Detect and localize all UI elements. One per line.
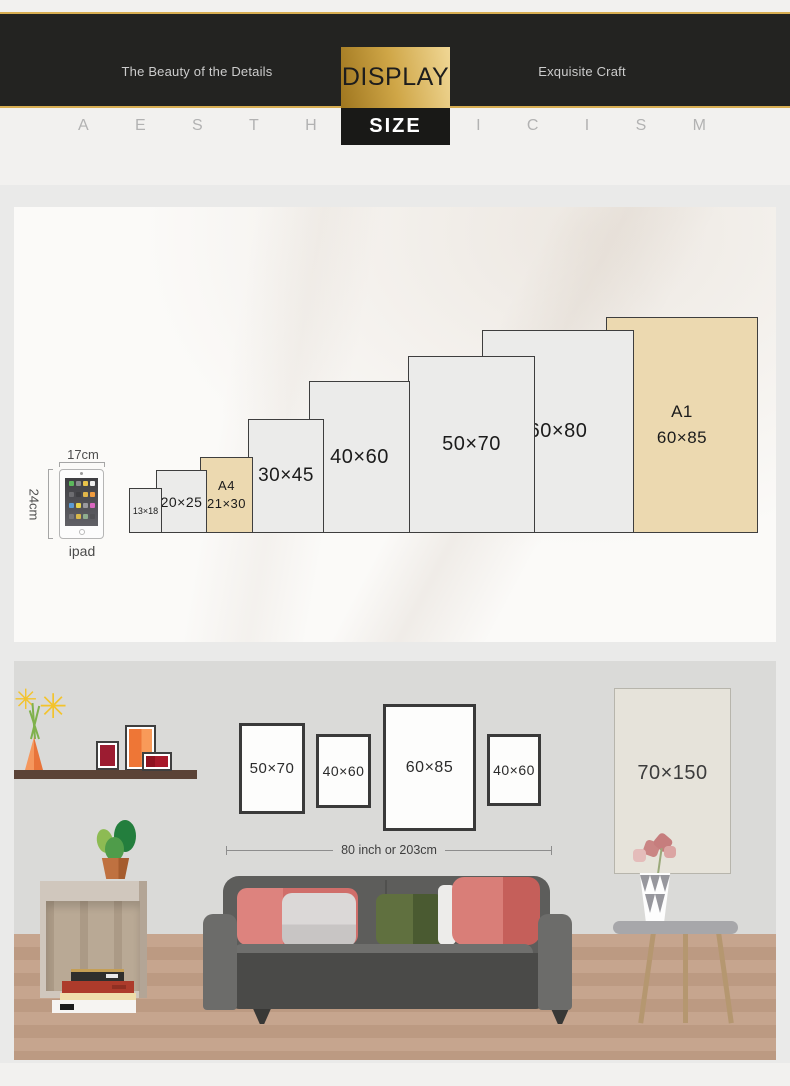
dimension-label: 80 inch or 203cm xyxy=(333,843,445,857)
ipad-camera-dot xyxy=(80,472,83,475)
ipad-height-bracket xyxy=(48,469,53,539)
wall-frame-40x60-b: 40×60 xyxy=(487,734,541,806)
book xyxy=(60,993,136,1000)
size-badge: SIZE xyxy=(341,108,450,145)
size-box-20x25: 20×25 xyxy=(156,470,207,533)
letter: E xyxy=(135,117,146,135)
size-box-label: 40×60 xyxy=(330,446,389,469)
sofa-width-dimension: 80 inch or 203cm xyxy=(226,845,552,855)
size-box-label: 20×25 xyxy=(161,494,203,510)
size-box-a4-21x30: A4 21×30 xyxy=(200,457,253,533)
side-table-top xyxy=(613,921,738,934)
book xyxy=(71,969,124,981)
wall-frame-label: 40×60 xyxy=(493,762,535,778)
app-icon xyxy=(69,503,74,508)
wall-frame-label: 70×150 xyxy=(637,762,707,785)
size-box-label: 60×85 xyxy=(657,425,707,451)
size-box-13x18: 13×18 xyxy=(129,488,162,533)
sofa-cushion-olive xyxy=(376,894,443,945)
letter: I xyxy=(476,117,480,135)
sofa-arm-right xyxy=(538,914,572,1010)
app-icon xyxy=(76,492,81,497)
cube-side-face xyxy=(139,881,147,998)
flower-petal xyxy=(664,846,676,858)
sofa-cushion-gray xyxy=(282,893,356,947)
ipad-illustration xyxy=(59,469,104,539)
wall-frame-label: 50×70 xyxy=(250,760,295,777)
book-label xyxy=(106,974,118,978)
size-box-30x45: 30×45 xyxy=(248,419,324,533)
dimension-line xyxy=(445,850,551,851)
app-icon xyxy=(69,514,74,519)
app-icon xyxy=(76,514,81,519)
size-box-label: 21×30 xyxy=(207,495,246,513)
size-box-label: 50×70 xyxy=(442,433,501,456)
display-badge: DISPLAY xyxy=(341,47,450,108)
product-infographic-page: The Beauty of the Details Exquisite Craf… xyxy=(0,0,790,1086)
book xyxy=(62,981,134,993)
table-vase xyxy=(636,873,674,922)
dimension-line xyxy=(227,850,333,851)
size-box-40x60: 40×60 xyxy=(309,381,410,533)
size-box-label: A1 xyxy=(671,399,693,425)
flower-burst-icon: ✳ xyxy=(39,690,68,724)
wall-frame-label: 40×60 xyxy=(323,763,365,779)
letter: T xyxy=(249,117,259,135)
frame-picture xyxy=(100,745,115,766)
wall-frame-60x85: 60×85 xyxy=(383,704,476,831)
cube-side-table xyxy=(40,881,147,998)
app-icon xyxy=(83,481,88,486)
size-box-50x70: 50×70 xyxy=(408,356,535,533)
vase-triangle xyxy=(655,894,665,913)
app-icon xyxy=(76,503,81,508)
sofa-arm-left xyxy=(203,914,237,1010)
cactus-pot xyxy=(100,858,131,879)
dimension-tick xyxy=(551,846,552,855)
letter: S xyxy=(192,117,203,135)
flower-petal xyxy=(633,849,646,862)
vase-triangle xyxy=(645,894,655,913)
app-icon xyxy=(83,514,88,519)
shelf-photo-frame xyxy=(96,741,119,770)
size-box-label: 13×18 xyxy=(133,506,158,516)
ipad-width-label: 17cm xyxy=(38,447,128,462)
wall-frame-40x60: 40×60 xyxy=(316,734,371,808)
app-icon xyxy=(69,492,74,497)
size-box-label: 60×80 xyxy=(529,420,588,443)
room-scene-panel: ✳ ✳ 50×70 40×60 60×85 40×60 70×150 xyxy=(14,661,776,1060)
vase-triangle xyxy=(650,875,660,892)
app-icon xyxy=(83,503,88,508)
app-icon xyxy=(83,492,88,497)
app-icon xyxy=(90,514,95,519)
app-icon xyxy=(69,481,74,486)
size-box-label: A4 xyxy=(218,477,235,495)
shelf-vase xyxy=(25,737,43,770)
table-leg xyxy=(683,932,688,1023)
size-box-label: 30×45 xyxy=(258,465,314,487)
ipad-home-button xyxy=(79,529,85,535)
vase-triangle xyxy=(640,875,650,892)
cactus-pad xyxy=(105,837,124,861)
sofa-seat xyxy=(233,953,542,1009)
wall-shelf xyxy=(14,770,197,779)
letter: A xyxy=(78,117,89,135)
book xyxy=(52,1000,136,1013)
app-icon xyxy=(76,481,81,486)
ipad-caption: ipad xyxy=(47,543,117,559)
letter: M xyxy=(693,117,706,135)
book-label xyxy=(112,985,126,989)
letter: I xyxy=(585,117,589,135)
vase-triangle xyxy=(660,875,670,892)
ipad-height-label: 24cm xyxy=(27,487,42,523)
app-icon xyxy=(90,492,95,497)
letter: S xyxy=(636,117,647,135)
letter: H xyxy=(305,117,317,135)
tagline-left: The Beauty of the Details xyxy=(87,64,307,79)
app-icon xyxy=(90,481,95,486)
frame-picture xyxy=(146,756,168,767)
app-icon xyxy=(90,503,95,508)
ipad-screen xyxy=(65,478,98,526)
wall-frame-50x70: 50×70 xyxy=(239,723,305,814)
size-chart-panel: 17cm 24cm ipad 13×18 20×25 A4 21×30 3 xyxy=(14,207,776,642)
cube-cavity xyxy=(46,901,140,991)
shelf-photo-frame xyxy=(142,752,172,771)
wall-frame-label: 60×85 xyxy=(406,759,453,777)
tagline-right: Exquisite Craft xyxy=(472,64,692,79)
ipad-width-bracket xyxy=(59,462,105,467)
sofa-cushion-red-large xyxy=(452,877,540,945)
letter: C xyxy=(527,117,539,135)
book-label xyxy=(60,1004,74,1010)
